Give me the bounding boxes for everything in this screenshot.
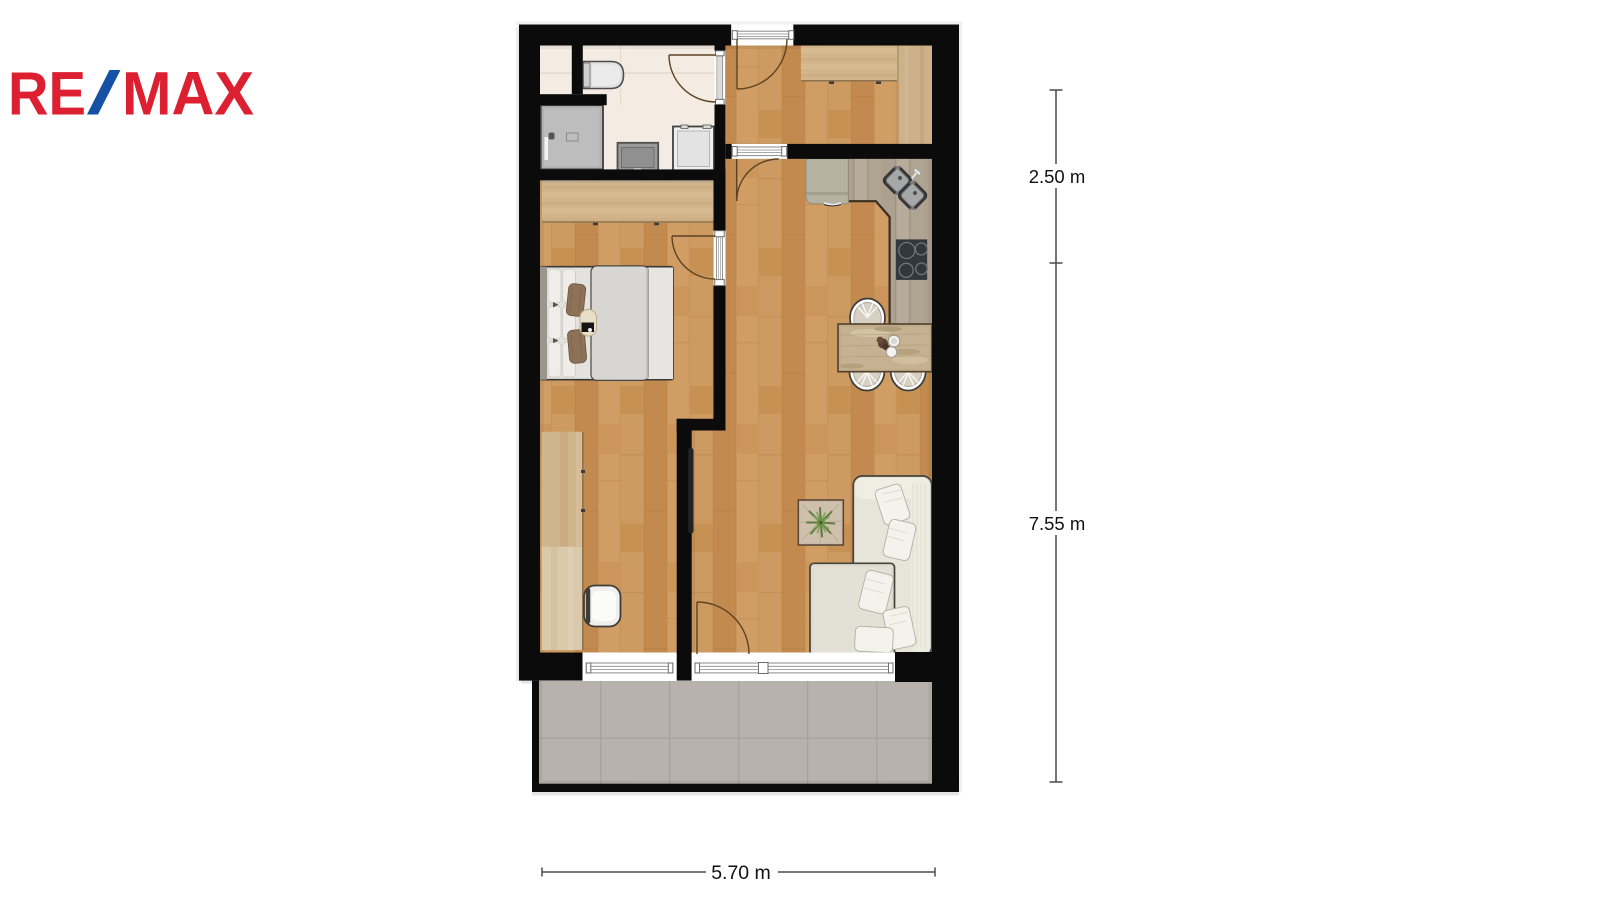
svg-text:MAX: MAX (122, 60, 254, 128)
svg-text:RE: RE (8, 60, 86, 128)
svg-text:7.55 m: 7.55 m (1029, 513, 1086, 534)
svg-text:5.70 m: 5.70 m (711, 862, 771, 884)
svg-text:2.50 m: 2.50 m (1029, 166, 1086, 187)
